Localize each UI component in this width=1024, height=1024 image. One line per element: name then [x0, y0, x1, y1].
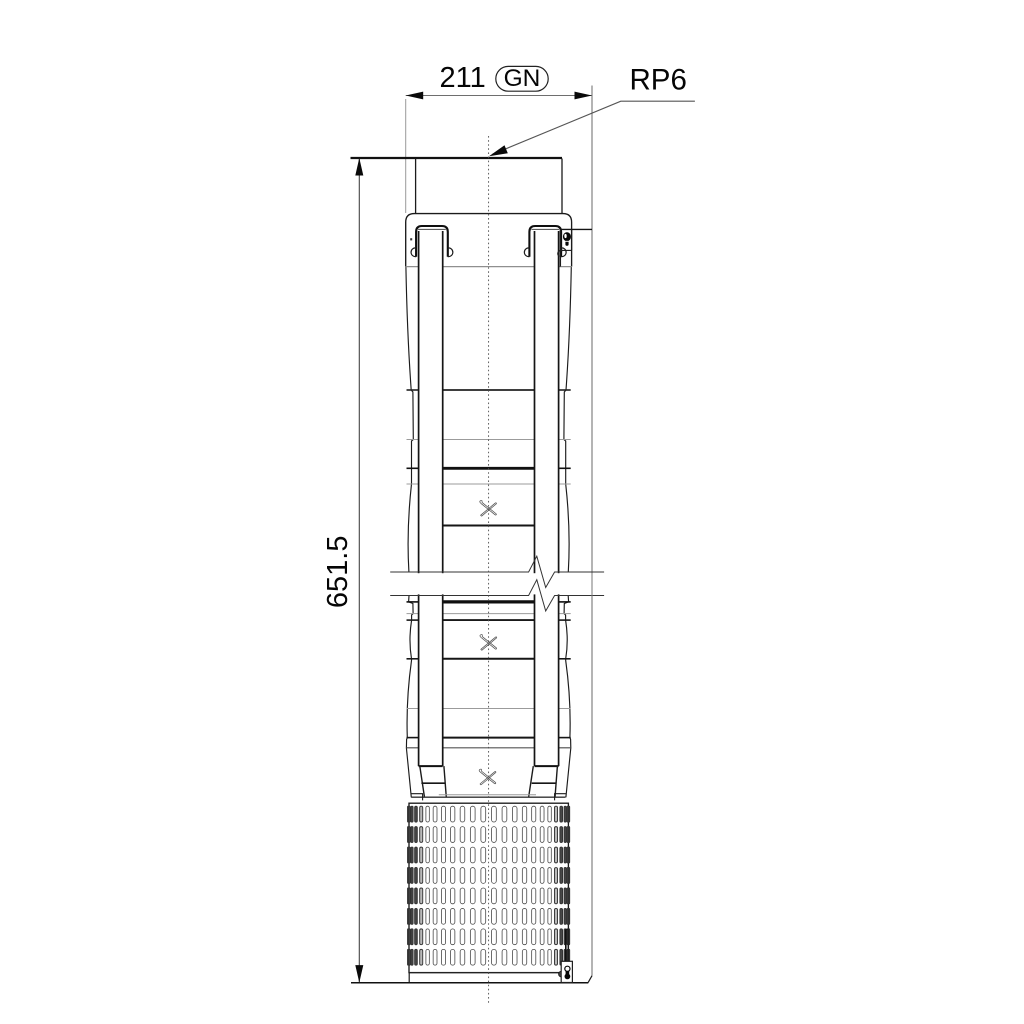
svg-text:651.5: 651.5 [322, 536, 354, 609]
svg-text:211: 211 [439, 62, 485, 94]
svg-text:GN: GN [504, 65, 541, 92]
svg-text:RP6: RP6 [630, 64, 687, 97]
